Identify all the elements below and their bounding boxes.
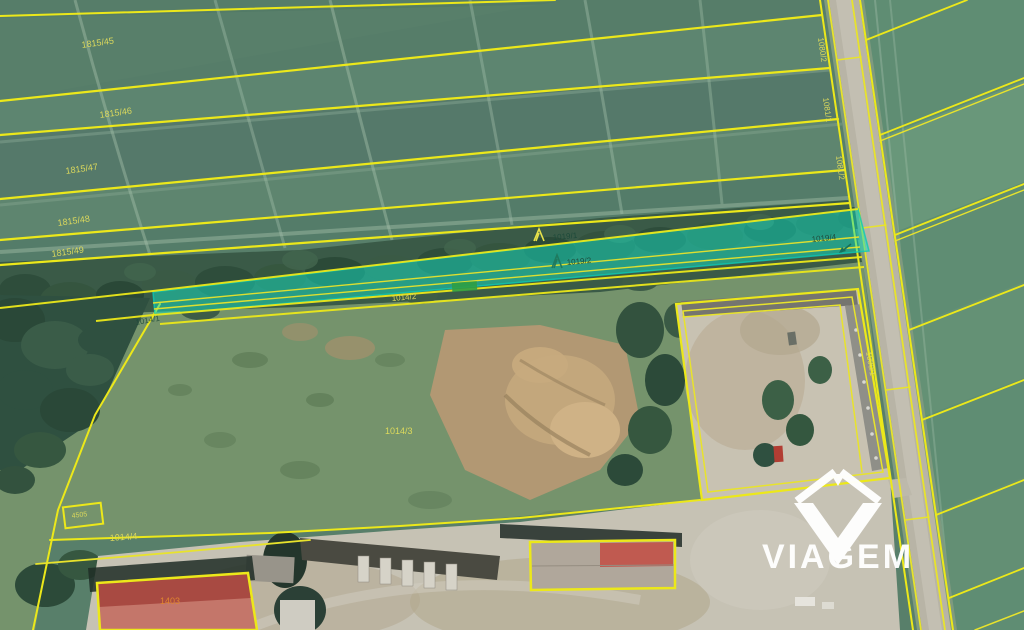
map-canvas: 1815/45 1815/46 1815/47 1815/48 1815/49 … xyxy=(0,0,1024,630)
cadastral-aerial-map: 1815/45 1815/46 1815/47 1815/48 1815/49 … xyxy=(0,0,1024,630)
viagem-wordmark: VIAGEM xyxy=(762,538,914,576)
vehicle xyxy=(795,597,815,606)
building-label-1403: 1403 xyxy=(160,596,180,606)
vehicle xyxy=(822,602,834,609)
green-parcel-tag xyxy=(452,281,478,292)
parcel-label-1014-4: 1014/4 xyxy=(109,531,137,543)
building-red-roof-left xyxy=(88,556,257,630)
parcel-label-1014-3: 1014/3 xyxy=(385,426,413,436)
industrial-yard xyxy=(676,289,890,500)
vehicle xyxy=(773,446,783,463)
